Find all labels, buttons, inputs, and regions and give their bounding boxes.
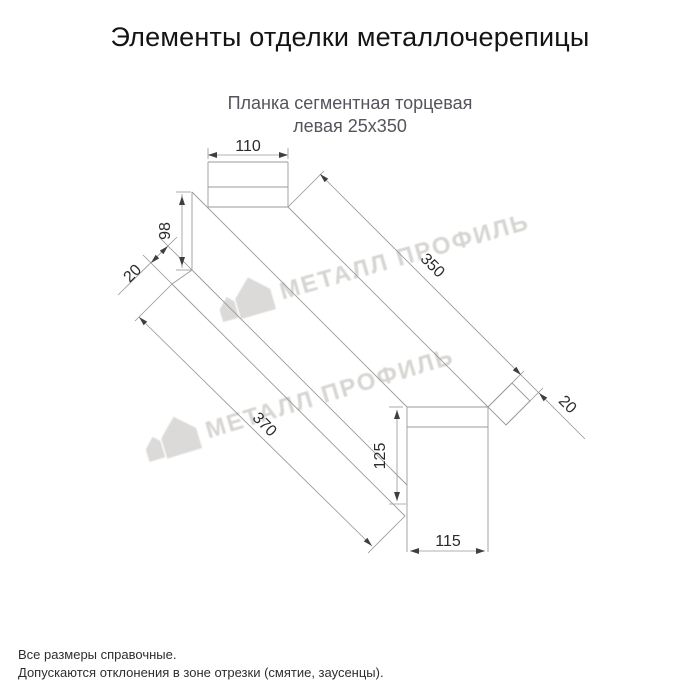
dim-right-height-label: 125 — [372, 443, 389, 470]
watermark-text: МЕТАЛЛ ПРОФИЛЬ — [202, 343, 457, 444]
dim-bottom-width-label: 115 — [435, 533, 461, 550]
footer-note-1: Все размеры справочные. — [18, 646, 384, 664]
watermark-text: МЕТАЛЛ ПРОФИЛЬ — [277, 208, 533, 305]
right-hem-cap — [488, 383, 530, 425]
dimension-lines — [118, 148, 585, 553]
dim-top-width-label: 110 — [235, 138, 261, 155]
dimension-arrows — [139, 152, 547, 554]
page: Элементы отделки металлочерепицы Планка … — [0, 0, 700, 700]
part-outline — [172, 162, 530, 552]
watermark-bottom: МЕТАЛЛ ПРОФИЛЬ — [138, 332, 458, 465]
dim-right-hem-label: 20 — [555, 393, 580, 418]
dim-left-height-label: 98 — [157, 222, 174, 240]
technical-drawing: МЕТАЛЛ ПРОФИЛЬ МЕТАЛЛ ПРОФИЛЬ — [0, 0, 700, 700]
dim-left-hem-label: 20 — [121, 261, 146, 286]
footer-notes: Все размеры справочные. Допускаются откл… — [18, 646, 384, 682]
watermark-top: МЕТАЛЛ ПРОФИЛЬ — [212, 198, 533, 325]
footer-note-2: Допускаются отклонения в зоне отрезки (с… — [18, 664, 384, 682]
